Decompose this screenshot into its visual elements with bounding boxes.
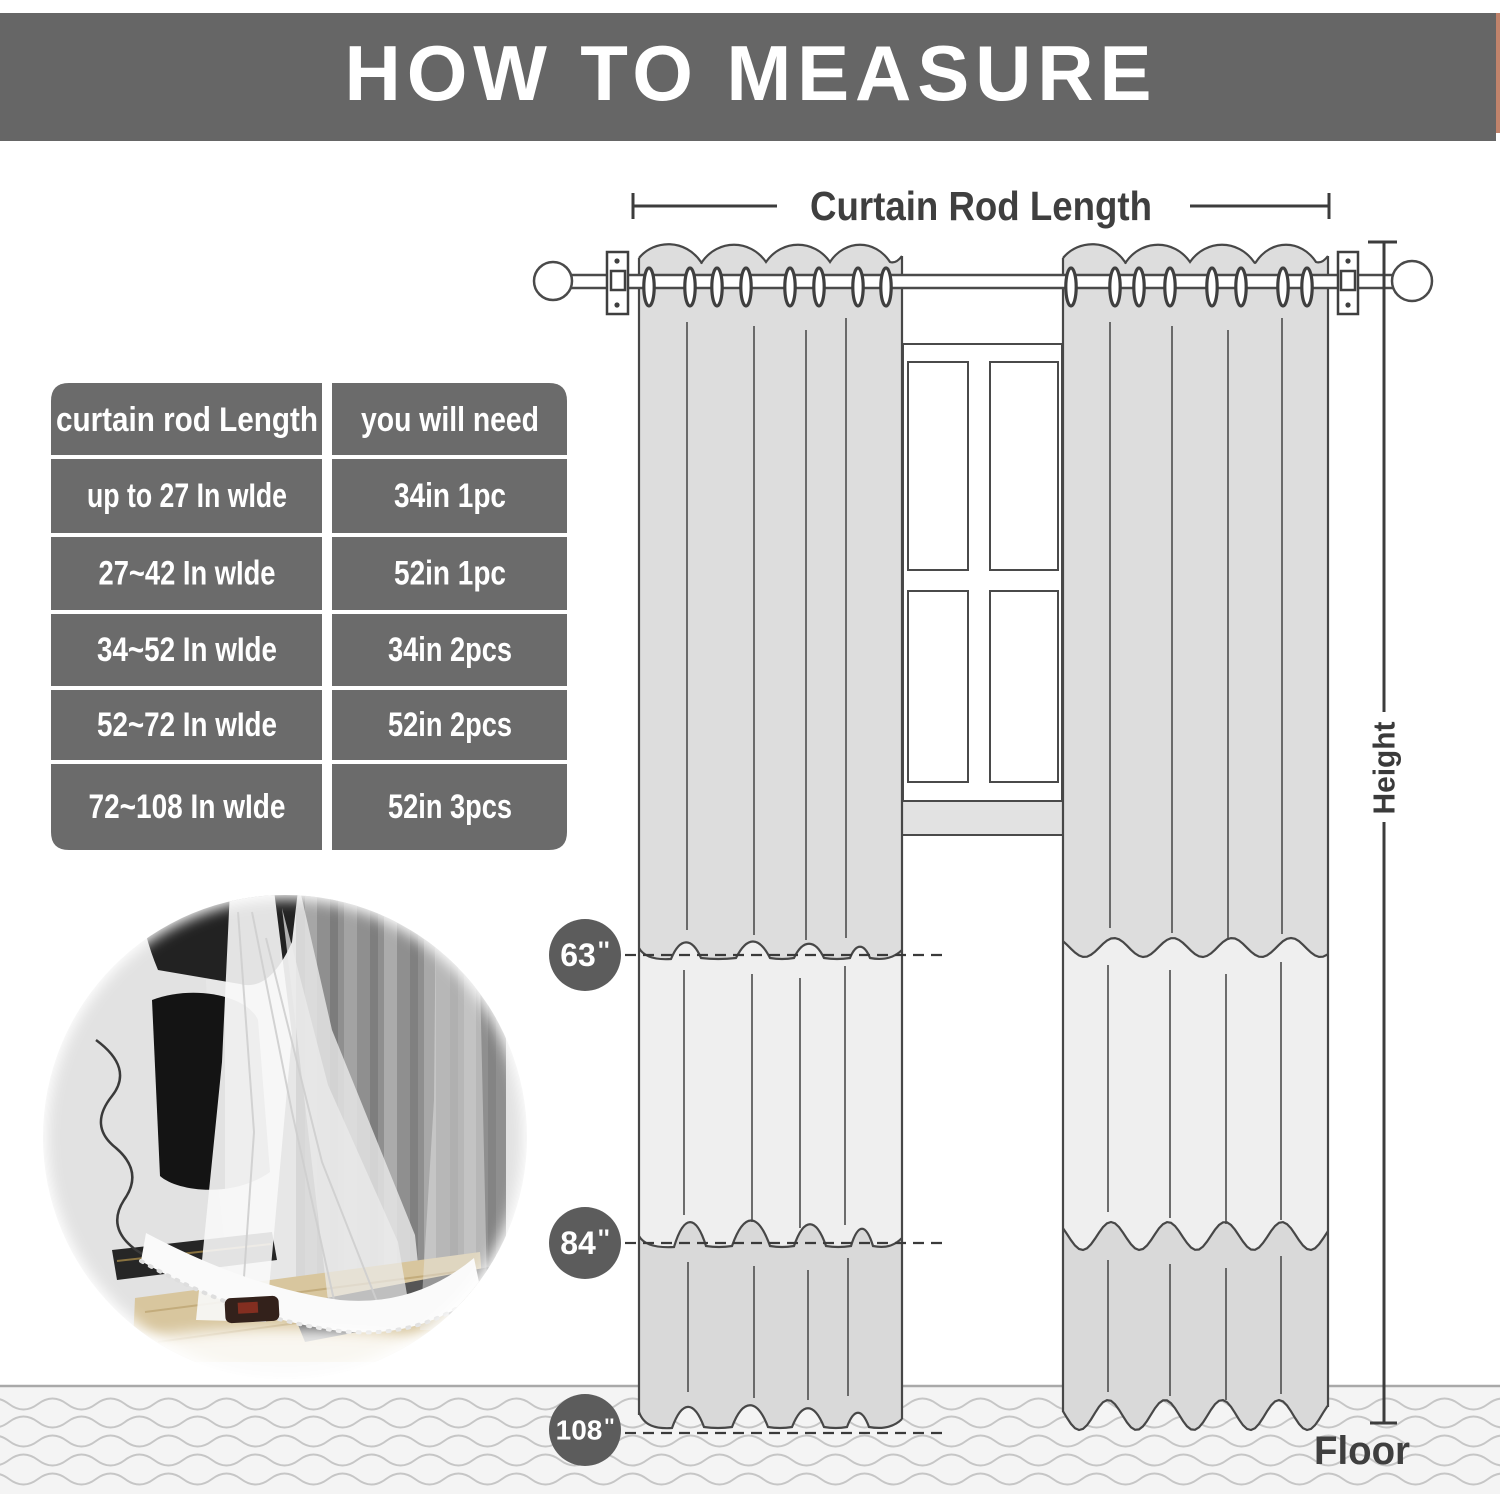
svg-text:52in 3pcs: 52in 3pcs: [388, 788, 512, 826]
svg-text:HOW TO MEASURE: HOW TO MEASURE: [345, 29, 1152, 117]
svg-text:52in 1pc: 52in 1pc: [394, 555, 506, 593]
svg-text:up to 27 In wIde: up to 27 In wIde: [87, 477, 287, 515]
svg-text:Floor: Floor: [1314, 1429, 1410, 1473]
svg-text:72~108 In wIde: 72~108 In wIde: [89, 788, 286, 826]
svg-text:curtain rod Length: curtain rod Length: [56, 401, 318, 439]
svg-text:34in 2pcs: 34in 2pcs: [388, 631, 512, 669]
svg-text:34in 1pc: 34in 1pc: [394, 477, 506, 515]
svg-text:Curtain Rod Length: Curtain Rod Length: [810, 183, 1152, 229]
svg-text:52~72 In wIde: 52~72 In wIde: [97, 706, 277, 744]
svg-text:52in 2pcs: 52in 2pcs: [388, 706, 512, 744]
svg-text:34~52 In wIde: 34~52 In wIde: [97, 631, 277, 669]
svg-text:27~42 In wIde: 27~42 In wIde: [99, 555, 276, 593]
svg-text:Height: Height: [1367, 722, 1402, 815]
svg-text:you will need: you will need: [361, 401, 539, 439]
